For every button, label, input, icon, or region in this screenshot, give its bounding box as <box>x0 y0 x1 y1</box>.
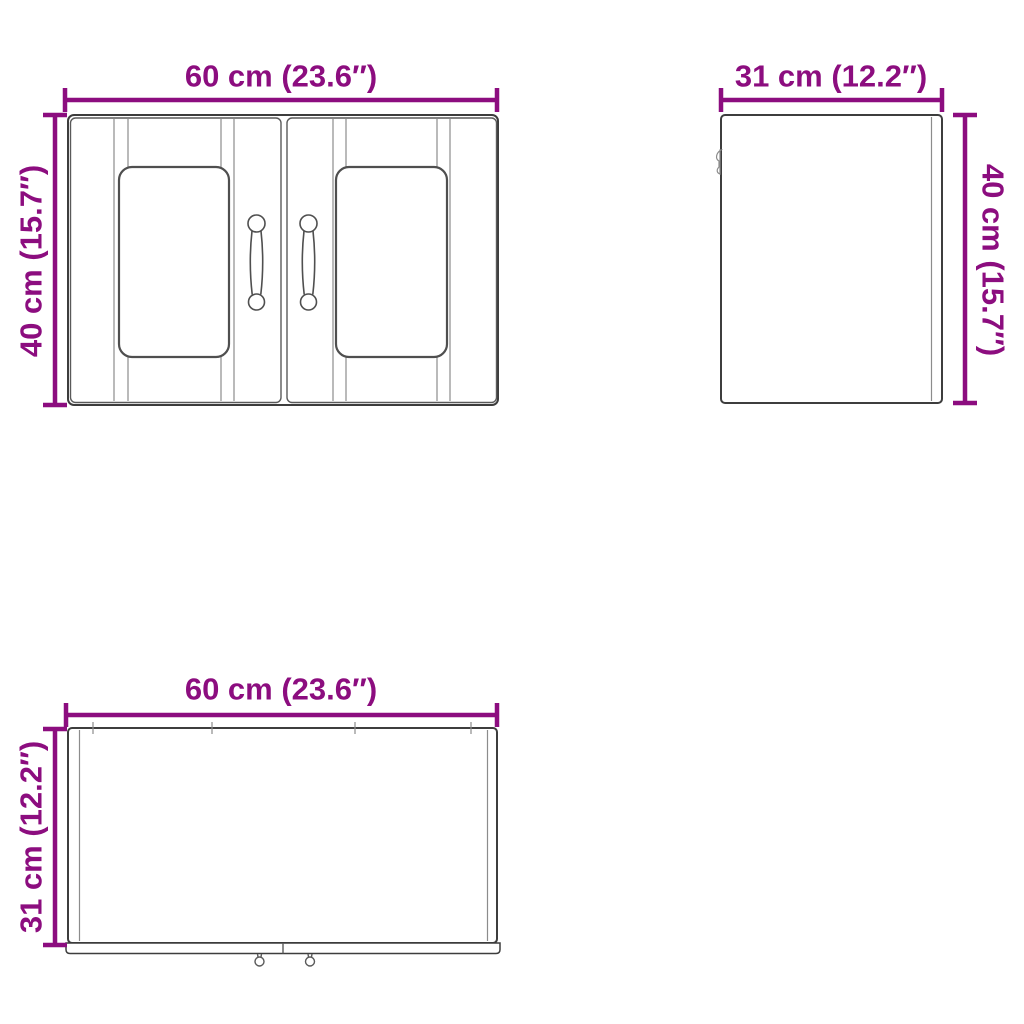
cabinet-dimension-diagram: 60 cm (23.6″) 40 cm (15.7″) 31 cm (12.2″… <box>0 0 1024 1024</box>
top-width-dimension <box>66 703 497 727</box>
front-right-glass-panel <box>336 167 447 357</box>
top-left-door-knob <box>255 954 264 966</box>
top-cabinet-outline <box>68 728 497 943</box>
top-height-label: 31 cm (12.2″) <box>16 741 47 933</box>
top-view-drawing <box>66 722 500 966</box>
side-view-drawing <box>717 115 942 403</box>
side-hinge-detail <box>717 150 721 174</box>
top-width-label: 60 cm (23.6″) <box>185 674 377 705</box>
front-left-glass-panel <box>119 167 229 357</box>
front-view-drawing <box>68 115 498 405</box>
top-right-door-knob <box>306 954 315 966</box>
side-height-label: 40 cm (15.7″) <box>978 164 1009 356</box>
side-cabinet-outline <box>721 115 942 403</box>
front-width-label: 60 cm (23.6″) <box>185 61 377 92</box>
diagram-line-art <box>0 0 1024 1024</box>
side-width-label: 31 cm (12.2″) <box>735 61 927 92</box>
side-height-dimension <box>953 115 977 403</box>
front-height-label: 40 cm (15.7″) <box>16 165 47 357</box>
